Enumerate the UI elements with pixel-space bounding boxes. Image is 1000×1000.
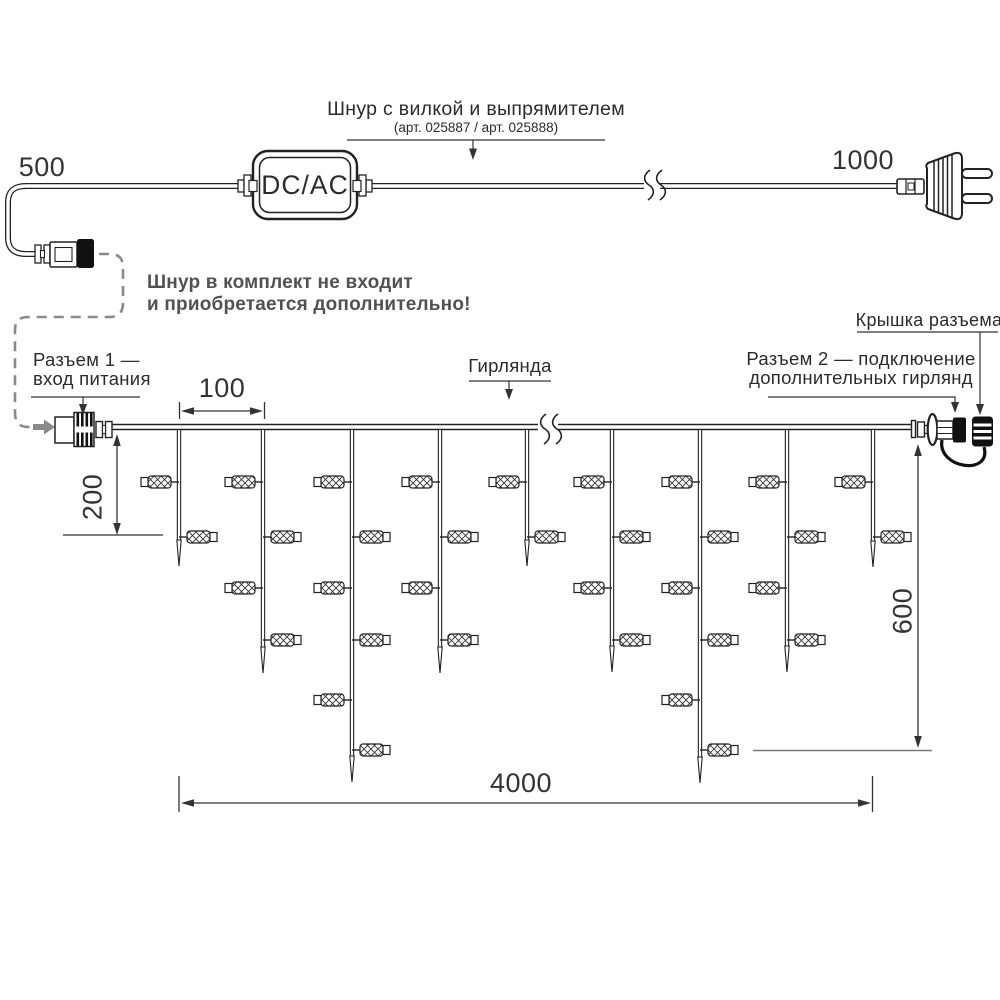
lamp-bulb — [448, 531, 471, 543]
connector2-label-line1: Разъем 2 — подключение — [746, 348, 975, 369]
arrow-up-icon — [914, 444, 922, 456]
dim-1000-label: 1000 — [832, 145, 894, 175]
power-plug — [897, 153, 992, 219]
dim-100-label: 100 — [199, 373, 246, 403]
arrow-down-icon — [469, 149, 477, 161]
drop-tip — [610, 646, 614, 672]
arrow-right-icon — [858, 799, 871, 807]
lamp-bulb — [620, 634, 643, 646]
lamp-bulb — [360, 744, 383, 756]
lamp-cap — [749, 478, 756, 487]
lamp-bulb — [232, 582, 255, 594]
lamp-cap — [294, 636, 301, 645]
garland-section: Разъем 1 — вход питания — [31, 310, 1000, 812]
dim-500-label: 500 — [19, 152, 66, 182]
lamp-cap — [314, 478, 321, 487]
drop-tip — [438, 647, 442, 673]
dim-200-label: 200 — [78, 474, 108, 521]
dc-ac-adapter: DC/AC — [238, 151, 372, 219]
cord-note: Шнур в комплект не входит и приобретаетс… — [147, 272, 471, 315]
dashed-connection-path — [15, 254, 123, 435]
connector1-callout: Разъем 1 — вход питания — [31, 349, 151, 415]
plug-prong-top — [962, 169, 992, 178]
arrow-down-icon — [976, 404, 984, 415]
lamp-bulb — [321, 694, 344, 706]
lamp-bulb — [708, 531, 731, 543]
connector2-plug — [953, 418, 966, 443]
wire-break-symbol — [645, 170, 666, 200]
garland-drop — [835, 430, 911, 567]
drop-tip — [177, 540, 181, 566]
lamp-cap — [402, 584, 409, 593]
drop-tip — [785, 646, 789, 672]
dimension-600: 600 — [753, 444, 932, 751]
lamp-cap — [314, 584, 321, 593]
lamp-bulb — [669, 582, 692, 594]
garland-drops — [141, 430, 911, 783]
cord-left-wire — [8, 186, 241, 254]
lamp-bulb — [409, 582, 432, 594]
garland-drop — [749, 430, 825, 672]
lamp-bulb — [271, 634, 294, 646]
connector2-assembly — [912, 414, 994, 466]
garland-drop — [225, 430, 301, 673]
lamp-cap — [904, 533, 911, 542]
lamp-cap — [558, 533, 565, 542]
cord-right-wire — [371, 170, 898, 200]
lamp-bulb — [708, 634, 731, 646]
lamp-bulb — [271, 531, 294, 543]
lamp-cap — [818, 533, 825, 542]
note-line2: и приобретается дополнительно! — [147, 294, 471, 315]
lamp-bulb — [708, 744, 731, 756]
garland-main-wire — [108, 414, 912, 444]
garland-drop — [662, 430, 738, 783]
lamp-cap — [383, 746, 390, 755]
lamp-bulb — [842, 476, 865, 488]
garland-drop — [314, 430, 390, 782]
cord-label: Шнур с вилкой и выпрямителем — [327, 98, 625, 120]
lamp-cap — [731, 636, 738, 645]
gray-arrow-right-icon — [33, 420, 55, 435]
lamp-cap — [574, 478, 581, 487]
garland-technical-diagram: DC/AC 500 1000 Шнур с вилкой и выпрямите… — [0, 0, 1000, 1000]
arrow-left-icon — [181, 407, 194, 415]
lamp-cap — [314, 696, 321, 705]
arrow-down-icon — [914, 736, 922, 748]
cap-label: Крышка разъема — [856, 310, 1000, 330]
lamp-cap — [471, 636, 478, 645]
lamp-cap — [574, 584, 581, 593]
dim-600-label: 600 — [888, 588, 918, 635]
lamp-bulb — [581, 476, 604, 488]
lamp-cap — [643, 636, 650, 645]
note-line1: Шнур в комплект не входит — [147, 272, 413, 293]
lamp-bulb — [321, 582, 344, 594]
lamp-cap — [835, 478, 842, 487]
lamp-cap — [294, 533, 301, 542]
dimension-4000: 4000 — [179, 768, 873, 812]
drop-tip — [261, 647, 265, 673]
wire-break-symbol — [541, 414, 562, 444]
drop-tip — [698, 757, 702, 783]
lamp-bulb — [669, 476, 692, 488]
lamp-bulb — [795, 531, 818, 543]
lamp-bulb — [795, 634, 818, 646]
garland-callout: Гирлянда — [468, 355, 552, 400]
lamp-cap — [662, 478, 669, 487]
spare-cord-connector — [35, 239, 94, 268]
lamp-bulb — [756, 476, 779, 488]
arrow-right-icon — [250, 407, 263, 415]
lamp-bulb — [496, 476, 519, 488]
lamp-cap — [225, 478, 232, 487]
arrow-down-icon — [505, 389, 513, 400]
lamp-bulb — [669, 694, 692, 706]
lamp-cap — [489, 478, 496, 487]
lamp-bulb — [232, 476, 255, 488]
arrow-down-icon — [951, 402, 959, 413]
connector1-power-input — [55, 413, 112, 447]
lamp-bulb — [360, 634, 383, 646]
arrow-left-icon — [181, 799, 194, 807]
lamp-bulb — [360, 531, 383, 543]
lamp-bulb — [620, 531, 643, 543]
lamp-cap — [731, 533, 738, 542]
lamp-cap — [141, 478, 148, 487]
hanging-loop — [928, 414, 938, 445]
garland-drop — [402, 430, 478, 673]
drop-tip — [525, 540, 529, 566]
plug-prong-bottom — [962, 194, 992, 203]
garland-label: Гирлянда — [468, 355, 552, 376]
connector2-label-line2: дополнительных гирлянд — [749, 367, 973, 388]
lamp-cap — [402, 478, 409, 487]
lamp-cap — [818, 636, 825, 645]
lamp-cap — [383, 636, 390, 645]
connector1-label-line1: Разъем 1 — — [33, 349, 140, 370]
lamp-bulb — [148, 476, 171, 488]
lamp-bulb — [409, 476, 432, 488]
lamp-cap — [749, 584, 756, 593]
arrow-up-icon — [113, 434, 121, 446]
garland-drop — [489, 430, 565, 566]
cord-callout: Шнур с вилкой и выпрямителем (арт. 02588… — [327, 98, 625, 160]
lamp-cap — [383, 533, 390, 542]
lamp-cap — [662, 584, 669, 593]
dimension-100: 100 — [180, 373, 265, 419]
lamp-cap — [471, 533, 478, 542]
dc-ac-label: DC/AC — [261, 170, 348, 200]
drop-tip — [871, 541, 875, 567]
lamp-cap — [210, 533, 217, 542]
lamp-cap — [643, 533, 650, 542]
lamp-bulb — [321, 476, 344, 488]
connector2-callout: Разъем 2 — подключение дополнительных ги… — [746, 348, 975, 413]
lamp-bulb — [881, 531, 904, 543]
dim-4000-label: 4000 — [490, 768, 552, 798]
cord-sublabel: (арт. 025887 / арт. 025888) — [394, 120, 558, 135]
lamp-cap — [225, 584, 232, 593]
garland-drop — [141, 430, 217, 566]
connector-cap — [972, 417, 993, 447]
lamp-bulb — [581, 582, 604, 594]
lamp-cap — [731, 746, 738, 755]
lamp-bulb — [535, 531, 558, 543]
lamp-bulb — [448, 634, 471, 646]
connector1-label-line2: вход питания — [33, 368, 151, 389]
garland-drop — [574, 430, 650, 672]
lamp-bulb — [187, 531, 210, 543]
lamp-bulb — [756, 582, 779, 594]
lamp-cap — [662, 696, 669, 705]
drop-tip — [350, 756, 354, 782]
arrow-down-icon — [113, 523, 121, 535]
